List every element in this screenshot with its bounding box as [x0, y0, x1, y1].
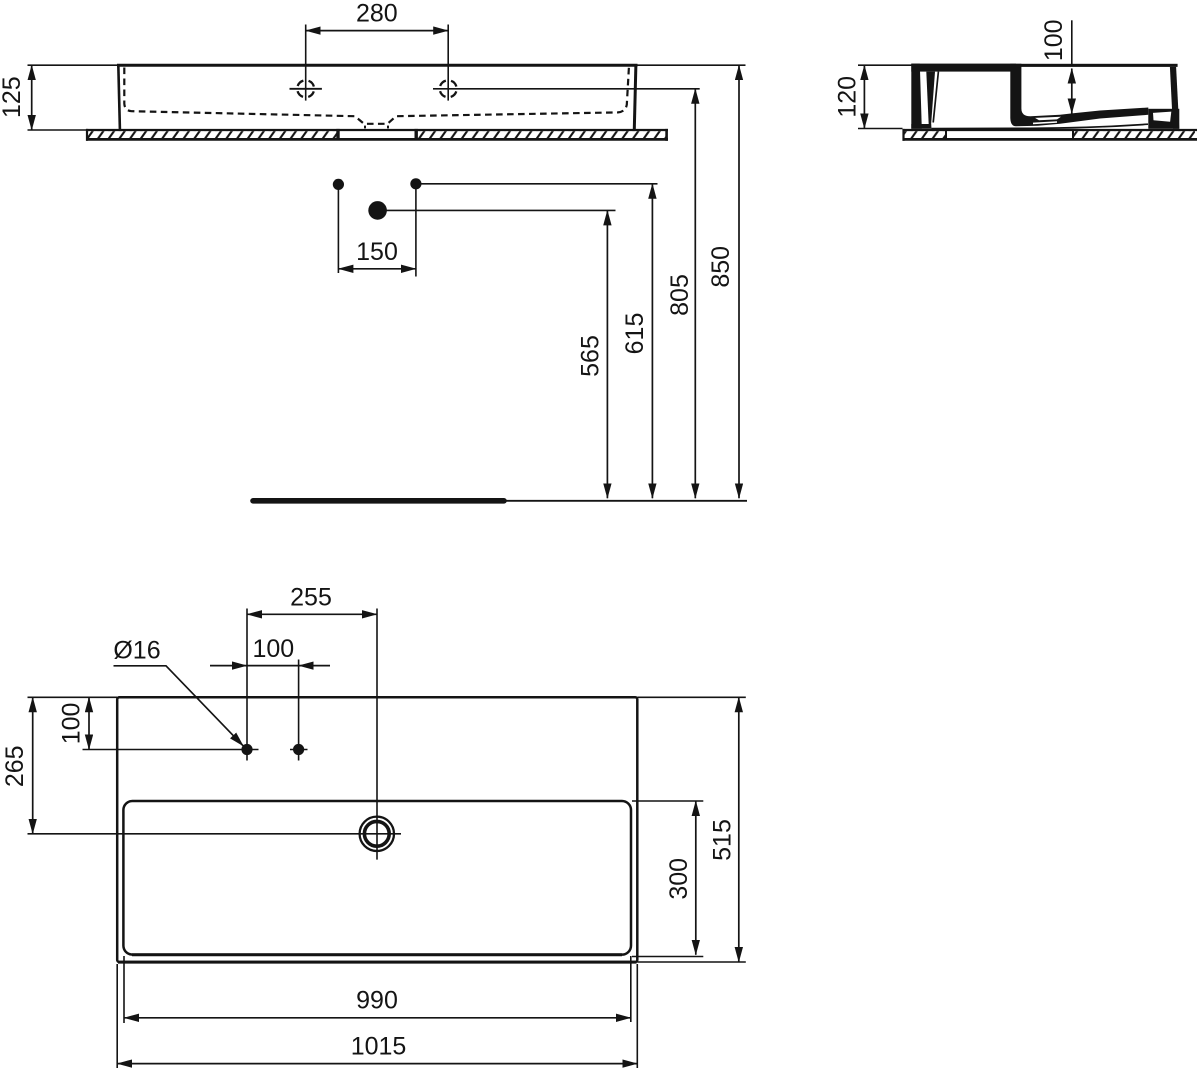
svg-text:280: 280 — [356, 0, 398, 28]
svg-text:100: 100 — [1040, 19, 1068, 61]
svg-text:615: 615 — [621, 313, 649, 355]
svg-text:1015: 1015 — [351, 1033, 407, 1061]
svg-text:100: 100 — [252, 635, 294, 663]
svg-text:565: 565 — [577, 335, 605, 377]
svg-text:300: 300 — [665, 858, 693, 900]
svg-text:120: 120 — [834, 76, 862, 118]
svg-text:150: 150 — [356, 238, 398, 266]
svg-text:Ø16: Ø16 — [113, 637, 160, 665]
svg-text:255: 255 — [290, 584, 332, 612]
svg-text:805: 805 — [666, 274, 694, 316]
svg-text:265: 265 — [1, 745, 29, 787]
svg-text:125: 125 — [0, 76, 26, 118]
svg-text:100: 100 — [58, 703, 86, 745]
svg-text:850: 850 — [707, 246, 735, 288]
svg-text:990: 990 — [356, 987, 398, 1015]
svg-text:515: 515 — [709, 819, 737, 861]
